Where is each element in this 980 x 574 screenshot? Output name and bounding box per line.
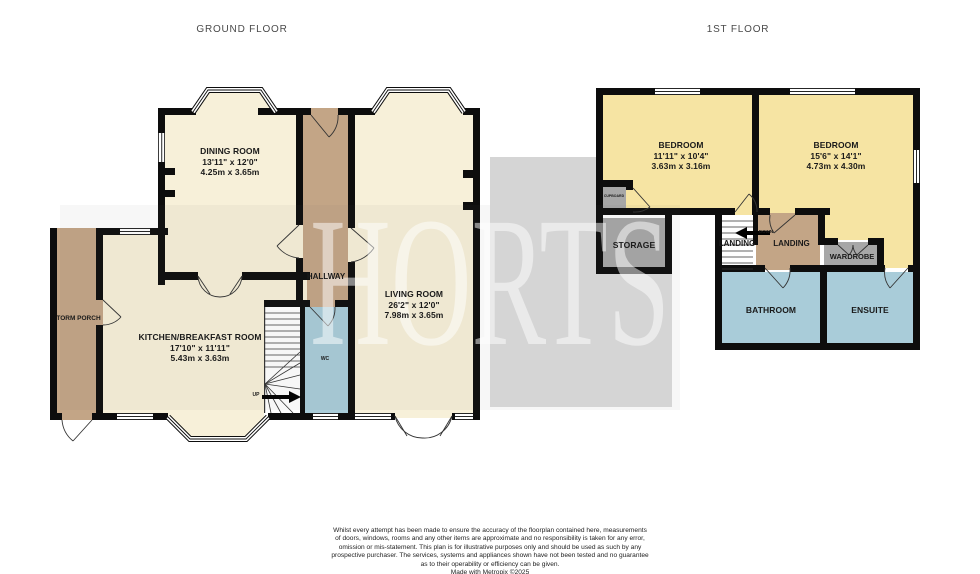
- room-dims-metric: 5.43m x 3.63m: [120, 353, 280, 364]
- room-name: KITCHEN/BREAKFAST ROOM: [120, 332, 280, 343]
- bathroom-label: BATHROOM: [722, 305, 820, 316]
- footer: Whilst every attempt has been made to en…: [230, 527, 750, 574]
- storm-porch-label: STORM PORCH: [57, 315, 117, 325]
- storage-label: STORAGE: [603, 240, 665, 251]
- room-name: DINING ROOM: [160, 146, 300, 157]
- dining-room-label: DINING ROOM 13'11" x 12'0" 4.25m x 3.65m: [160, 146, 300, 178]
- floorplan-page: HORTS GROUND FLOOR 1ST FLOOR DINING ROOM…: [0, 0, 980, 574]
- room-name: LIVING ROOM: [344, 289, 484, 300]
- wardrobe-label: WARDROBE: [826, 253, 878, 261]
- bedroom-2-label: BEDROOM 15'6" x 14'1" 4.73m x 4.30m: [766, 140, 906, 172]
- room-dims-metric: 3.63m x 3.16m: [611, 161, 751, 172]
- cupboard-label: CUPBOARD: [602, 194, 626, 198]
- room-dims-imperial: 17'10" x 11'11": [120, 343, 280, 354]
- disclaimer-text: Whilst every attempt has been made to en…: [230, 527, 750, 569]
- ground-floor-title: GROUND FLOOR: [162, 24, 322, 35]
- first-floor-title: 1ST FLOOR: [658, 24, 818, 35]
- landing-over-stairs-label: LANDING: [712, 239, 762, 248]
- room-name: BEDROOM: [766, 140, 906, 151]
- credit-text: Made with Metropix ©2025: [230, 569, 750, 574]
- up-label: UP: [248, 392, 264, 398]
- hallway-label: HALLWAY: [300, 272, 352, 281]
- landing-label: LANDING: [764, 239, 819, 248]
- kitchen-label: KITCHEN/BREAKFAST ROOM 17'10" x 11'11" 5…: [120, 332, 280, 364]
- room-name: BEDROOM: [611, 140, 751, 151]
- room-dims-metric: 7.98m x 3.65m: [344, 310, 484, 321]
- bedroom-1-label: BEDROOM 11'11" x 10'4" 3.63m x 3.16m: [611, 140, 751, 172]
- room-dims-imperial: 26'2" x 12'0": [344, 300, 484, 311]
- watermark-text: HORTS: [310, 180, 670, 385]
- living-room-label: LIVING ROOM 26'2" x 12'0" 7.98m x 3.65m: [344, 289, 484, 321]
- ensuite-label: ENSUITE: [827, 305, 913, 316]
- watermark: HORTS: [60, 157, 680, 410]
- wc-label: WC: [314, 356, 336, 362]
- room-dims-imperial: 15'6" x 14'1": [766, 151, 906, 162]
- floorplan-graphic: HORTS: [0, 0, 980, 574]
- room-dims-metric: 4.25m x 3.65m: [160, 167, 300, 178]
- room-dims-metric: 4.73m x 4.30m: [766, 161, 906, 172]
- down-label: DOWN: [756, 229, 776, 234]
- room-dims-imperial: 11'11" x 10'4": [611, 151, 751, 162]
- room-dims-imperial: 13'11" x 12'0": [160, 157, 300, 168]
